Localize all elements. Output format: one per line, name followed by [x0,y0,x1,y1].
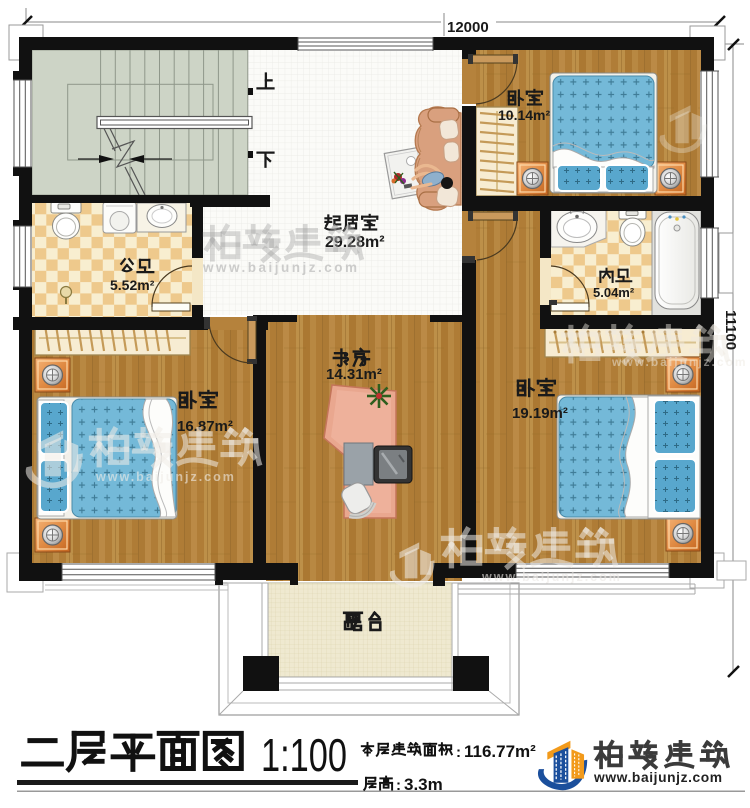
svg-text::: : [456,744,461,761]
svg-text:1:100: 1:100 [261,729,347,781]
svg-text:12000: 12000 [447,19,489,36]
svg-text:www.baijunjz.com: www.baijunjz.com [481,570,622,584]
svg-text:www.baijunjz.com: www.baijunjz.com [593,770,723,785]
svg-text:116.77m²: 116.77m² [464,742,536,761]
svg-text:5.52m²: 5.52m² [110,277,155,293]
svg-text:3.3m: 3.3m [404,775,443,794]
svg-text:14.31m²: 14.31m² [326,366,382,383]
svg-text:5.04m²: 5.04m² [593,285,635,300]
svg-text:www.baijunjz.com: www.baijunjz.com [611,355,748,369]
svg-text:www.baijunjz.com: www.baijunjz.com [202,260,360,275]
svg-text::: : [396,777,401,794]
svg-text:www.baijunjz.com: www.baijunjz.com [95,470,236,484]
svg-text:10.14m²: 10.14m² [498,107,550,123]
svg-text:19.19m²: 19.19m² [512,405,568,422]
